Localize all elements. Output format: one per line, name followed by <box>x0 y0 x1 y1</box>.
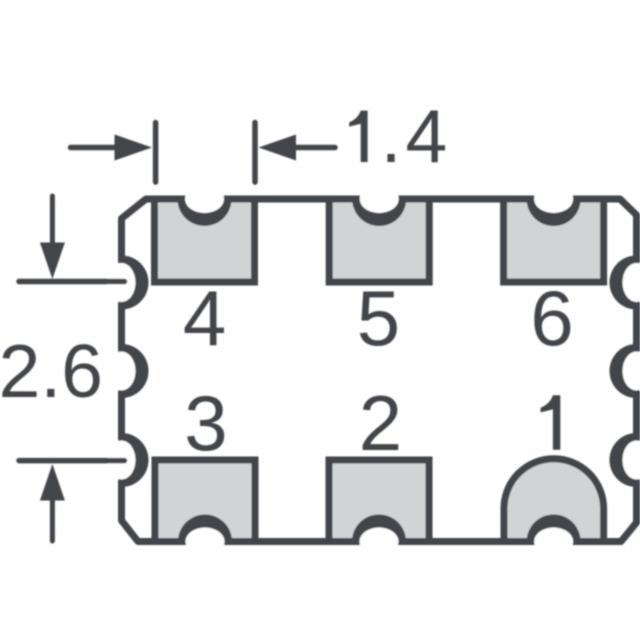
svg-text:4: 4 <box>183 274 226 362</box>
svg-text:.: . <box>381 94 402 178</box>
svg-text:5: 5 <box>357 274 400 362</box>
svg-text:2: 2 <box>359 379 402 467</box>
svg-text:6: 6 <box>530 274 573 362</box>
svg-text:2.6: 2.6 <box>0 329 103 413</box>
svg-text:3: 3 <box>184 379 227 467</box>
svg-text:4: 4 <box>406 94 448 178</box>
